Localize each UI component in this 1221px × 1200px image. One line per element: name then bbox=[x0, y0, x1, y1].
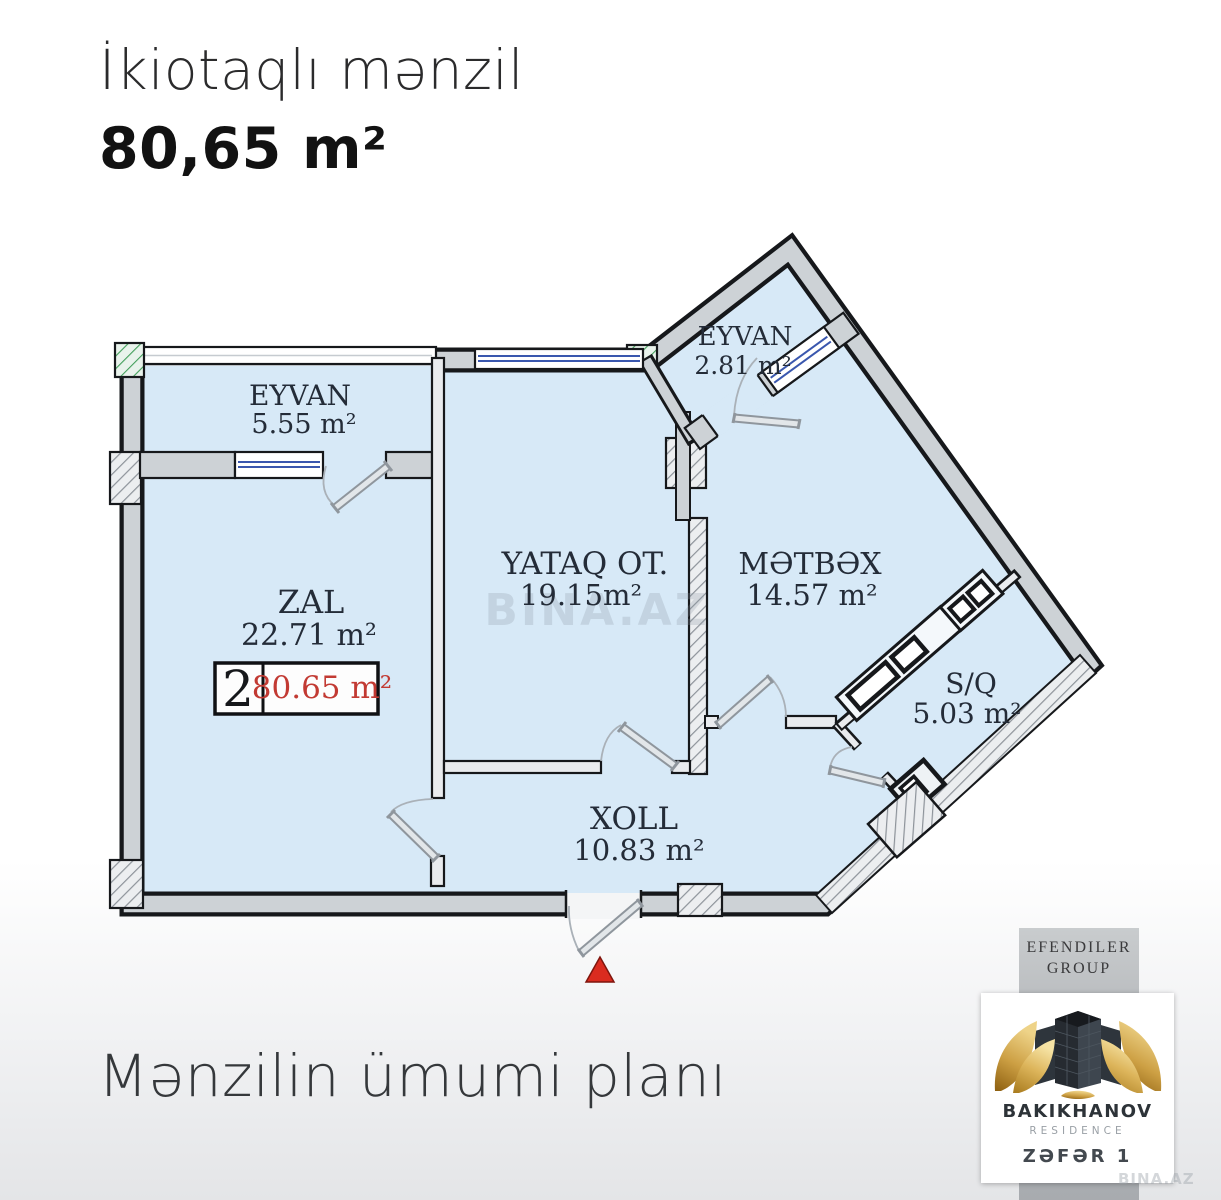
page-area: 80,65 m² bbox=[99, 116, 524, 182]
brand-name: BAKIKHANOV bbox=[1002, 1101, 1152, 1122]
watermark-small: BINA.AZ bbox=[1118, 1170, 1195, 1188]
residence-logo-icon bbox=[983, 1001, 1173, 1101]
badge-number: 2 bbox=[222, 660, 254, 718]
room-area: 5.03 m² bbox=[912, 697, 1021, 730]
balcony-glazing bbox=[138, 347, 436, 376]
page-title: İkiotaqlı mənzil bbox=[99, 38, 524, 102]
room-area: 5.55 m² bbox=[251, 409, 356, 440]
room-area: 22.71 m² bbox=[241, 618, 377, 653]
room-area: 14.57 m² bbox=[746, 578, 877, 612]
room-name: YATAQ OT. bbox=[501, 546, 669, 582]
room-label-metbex: MƏTBƏX 14.57 m² bbox=[738, 547, 882, 612]
header: İkiotaqlı mənzil 80,65 m² bbox=[99, 38, 524, 182]
screenshot-root: BINA.AZ 2 80.65 m² EYVAN 5.55 m² EYVAN 2… bbox=[0, 0, 1221, 1200]
room-name: MƏTBƏX bbox=[738, 547, 882, 582]
room-name: ZAL bbox=[278, 583, 345, 621]
room-name: XOLL bbox=[590, 801, 678, 837]
room-name: S/Q bbox=[945, 667, 997, 700]
room-area: 2.81 m² bbox=[694, 351, 791, 380]
company-name-2: GROUP bbox=[1019, 958, 1139, 979]
project-name: ZƏFƏR 1 bbox=[1023, 1146, 1133, 1167]
room-label-eyvan1: EYVAN 5.55 m² bbox=[249, 379, 357, 440]
room-name: EYVAN bbox=[698, 322, 793, 352]
room-area: 10.83 m² bbox=[573, 833, 704, 867]
room-name: EYVAN bbox=[249, 379, 351, 412]
badge-area: 80.65 m² bbox=[252, 670, 392, 706]
window-yataq bbox=[475, 349, 643, 369]
plan-caption: Mənzilin ümumi planı bbox=[98, 1042, 727, 1110]
room-label-eyvan2: EYVAN 2.81 m² bbox=[694, 322, 792, 380]
entrance-marker-icon bbox=[586, 957, 614, 982]
window-zal-eyvan bbox=[235, 452, 323, 478]
room-area: 19.15m² bbox=[520, 578, 642, 612]
brand-subtitle: RESIDENCE bbox=[1029, 1125, 1125, 1137]
company-name: EFENDILER bbox=[1019, 937, 1139, 958]
apartment-badge: 2 80.65 m² bbox=[215, 660, 392, 718]
residence-logo-card: BAKIKHANOV RESIDENCE ZƏFƏR 1 bbox=[981, 993, 1174, 1183]
green-column-left bbox=[115, 343, 144, 377]
